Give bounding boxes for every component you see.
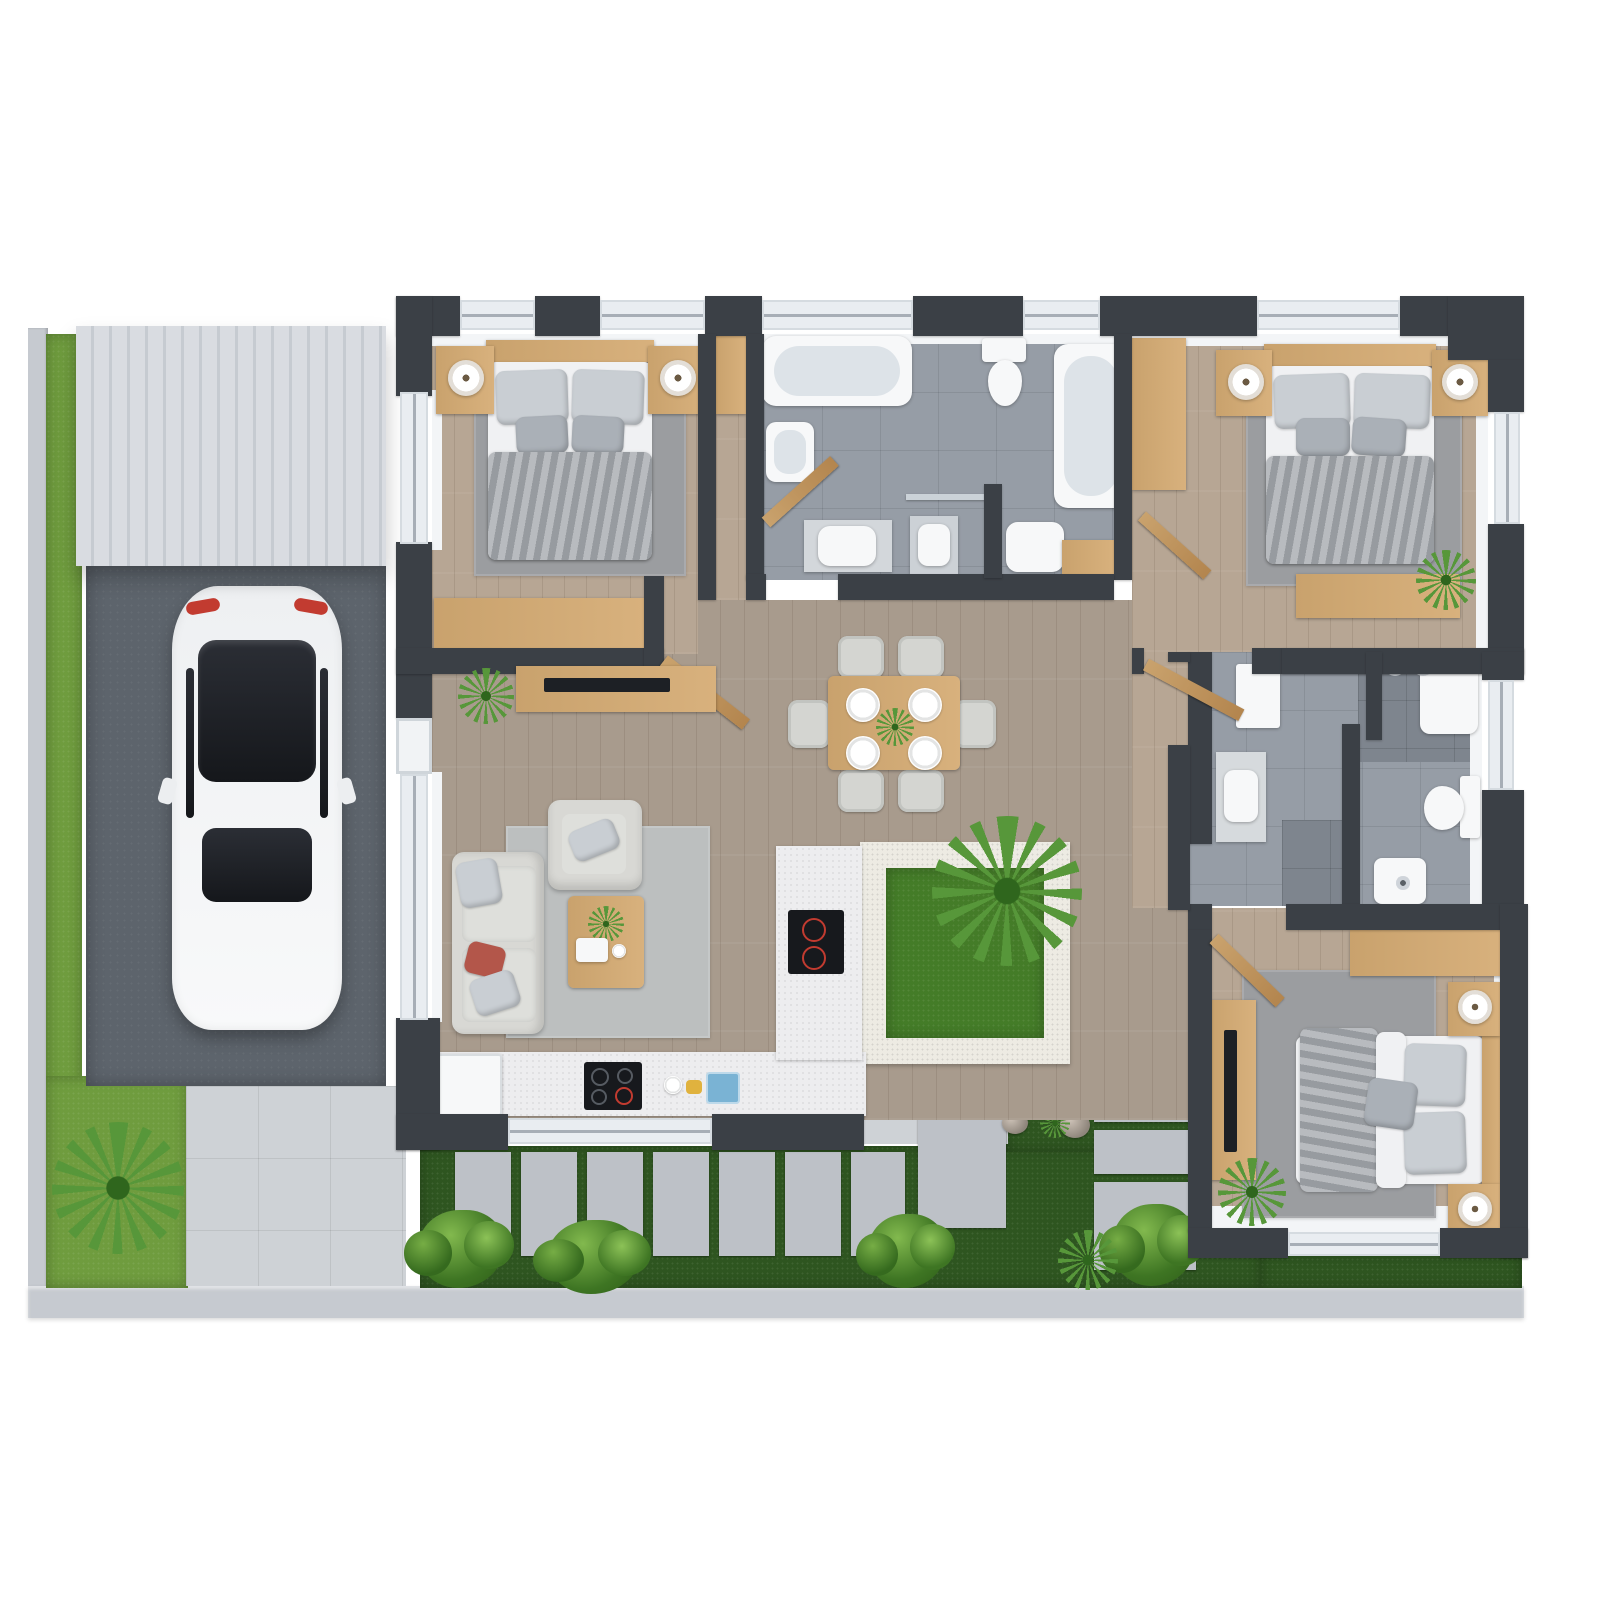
accent-pillow bbox=[1351, 416, 1408, 458]
car-side-window-right bbox=[320, 668, 328, 818]
wall bbox=[746, 574, 766, 600]
wall bbox=[1482, 790, 1524, 908]
car-side-window-left bbox=[186, 668, 194, 818]
bedroom-3-headboard bbox=[1482, 1034, 1502, 1186]
window bbox=[1257, 300, 1400, 330]
burner bbox=[802, 918, 826, 942]
window bbox=[1023, 300, 1100, 330]
wall bbox=[1188, 1228, 1288, 1258]
accent-pillow bbox=[1296, 418, 1350, 456]
burner bbox=[802, 946, 826, 970]
wall bbox=[396, 542, 432, 718]
wall-divider bbox=[984, 484, 1002, 578]
wall bbox=[1482, 652, 1524, 680]
car-windshield bbox=[202, 828, 312, 902]
plate bbox=[908, 688, 942, 722]
fridge bbox=[436, 1054, 502, 1116]
living-plant bbox=[458, 668, 514, 724]
bidet-bowl bbox=[774, 430, 806, 474]
paver bbox=[719, 1152, 775, 1256]
plate bbox=[846, 688, 880, 722]
coffee-cup bbox=[612, 944, 626, 958]
wall bbox=[1114, 334, 1132, 580]
accent-pillow bbox=[571, 415, 625, 456]
window bbox=[600, 300, 705, 330]
kitchen-yellow-item bbox=[686, 1080, 702, 1094]
wall bbox=[1488, 524, 1524, 652]
small-palm-plant bbox=[1058, 1230, 1118, 1290]
accent-pillow bbox=[515, 415, 569, 456]
coffee-table-tray bbox=[576, 938, 608, 962]
entry-door bbox=[396, 718, 432, 774]
kitchen-plate bbox=[664, 1076, 682, 1094]
wall bbox=[644, 576, 664, 674]
vanity-basin-2 bbox=[1006, 522, 1064, 572]
vanity-basin bbox=[818, 526, 876, 566]
wall-divider bbox=[1342, 724, 1360, 906]
dining-chair bbox=[954, 700, 996, 748]
wall bbox=[1286, 904, 1524, 930]
bathtub-2-basin bbox=[1064, 356, 1118, 496]
burner bbox=[615, 1087, 633, 1105]
floor-plan-render bbox=[0, 0, 1600, 1600]
wall bbox=[1440, 1228, 1528, 1258]
bedroom-2-plant bbox=[1416, 550, 1476, 610]
shower-fixture bbox=[1396, 876, 1410, 890]
living-tv bbox=[544, 678, 670, 692]
bedroom-3-wardrobe bbox=[1350, 930, 1504, 976]
window bbox=[762, 300, 913, 330]
wall-lining bbox=[432, 390, 442, 550]
table-lamp bbox=[448, 360, 484, 396]
site-curb-left bbox=[28, 328, 48, 1318]
bedroom-1-wardrobe bbox=[434, 598, 644, 650]
window bbox=[400, 774, 428, 1020]
palm-tree-left bbox=[52, 1122, 184, 1254]
burner bbox=[591, 1068, 609, 1086]
window bbox=[1288, 1232, 1440, 1256]
pedestal-sink-basin bbox=[918, 524, 950, 566]
wall-divider bbox=[1366, 652, 1382, 740]
bedroom-2-blanket bbox=[1266, 456, 1434, 564]
paver bbox=[653, 1152, 709, 1256]
courtyard-palm bbox=[932, 816, 1082, 966]
wall bbox=[913, 296, 1023, 336]
dining-chair bbox=[788, 700, 830, 748]
wall bbox=[396, 1114, 508, 1150]
bedroom-3-plant bbox=[1218, 1158, 1286, 1226]
toilet-tank bbox=[982, 338, 1026, 362]
wall bbox=[1188, 930, 1212, 1232]
accent-pillow bbox=[1363, 1077, 1419, 1131]
burner bbox=[617, 1068, 633, 1084]
table-lamp bbox=[1458, 1192, 1492, 1226]
coffee-table-plant bbox=[588, 906, 624, 942]
burner bbox=[591, 1089, 607, 1105]
sofa-pillow bbox=[454, 857, 503, 910]
wall bbox=[712, 1114, 864, 1150]
bathroom-2-basin bbox=[1224, 770, 1258, 822]
dining-chair bbox=[838, 636, 884, 678]
wall bbox=[1448, 296, 1524, 360]
wall bbox=[1168, 745, 1190, 910]
plate bbox=[908, 736, 942, 770]
table-lamp bbox=[1458, 990, 1492, 1024]
vestibule-cabinet bbox=[716, 336, 746, 414]
window bbox=[460, 300, 535, 330]
carport-roof bbox=[76, 326, 386, 566]
wall bbox=[1100, 296, 1257, 336]
wall bbox=[1488, 360, 1524, 412]
tv-screen bbox=[1224, 1030, 1237, 1152]
dining-chair bbox=[898, 770, 944, 812]
table-centerpiece bbox=[876, 708, 914, 746]
wall bbox=[1400, 296, 1448, 336]
wall bbox=[1500, 904, 1528, 1258]
wall bbox=[698, 334, 716, 600]
wall bbox=[1188, 904, 1212, 930]
kitchen-blue-box bbox=[706, 1072, 740, 1104]
plate bbox=[846, 736, 880, 770]
dining-chair bbox=[838, 770, 884, 812]
wall bbox=[535, 296, 600, 336]
wall bbox=[1168, 652, 1190, 662]
wall bbox=[396, 296, 432, 396]
table-lamp bbox=[1442, 364, 1478, 400]
front-walkway bbox=[186, 1086, 406, 1286]
car-rear-glass-roof bbox=[198, 640, 316, 782]
bathtub-basin bbox=[774, 346, 900, 396]
wall bbox=[705, 296, 762, 336]
window bbox=[400, 392, 428, 544]
bathroom-2-wet-zone bbox=[1282, 820, 1344, 906]
wall bbox=[838, 574, 1114, 600]
bedroom-2-wardrobe bbox=[1132, 338, 1186, 490]
window bbox=[508, 1118, 712, 1144]
cooktop bbox=[584, 1062, 642, 1110]
shower-screen bbox=[906, 494, 986, 500]
paver bbox=[785, 1152, 841, 1256]
table-lamp bbox=[660, 360, 696, 396]
window bbox=[1494, 412, 1520, 524]
bedroom-1-blanket bbox=[488, 452, 652, 560]
site-curb-bottom bbox=[28, 1286, 1524, 1318]
bedroom-2-headboard bbox=[1264, 344, 1436, 366]
bedroom-1-headboard bbox=[486, 340, 654, 362]
wall-lining bbox=[432, 772, 442, 1022]
bathroom-1-cabinet bbox=[1062, 540, 1114, 576]
wall bbox=[746, 334, 764, 580]
table-lamp bbox=[1228, 364, 1264, 400]
window bbox=[1488, 680, 1514, 790]
island-cooktop bbox=[788, 910, 844, 974]
dining-chair bbox=[898, 636, 944, 678]
stone-slab bbox=[1094, 1130, 1196, 1174]
